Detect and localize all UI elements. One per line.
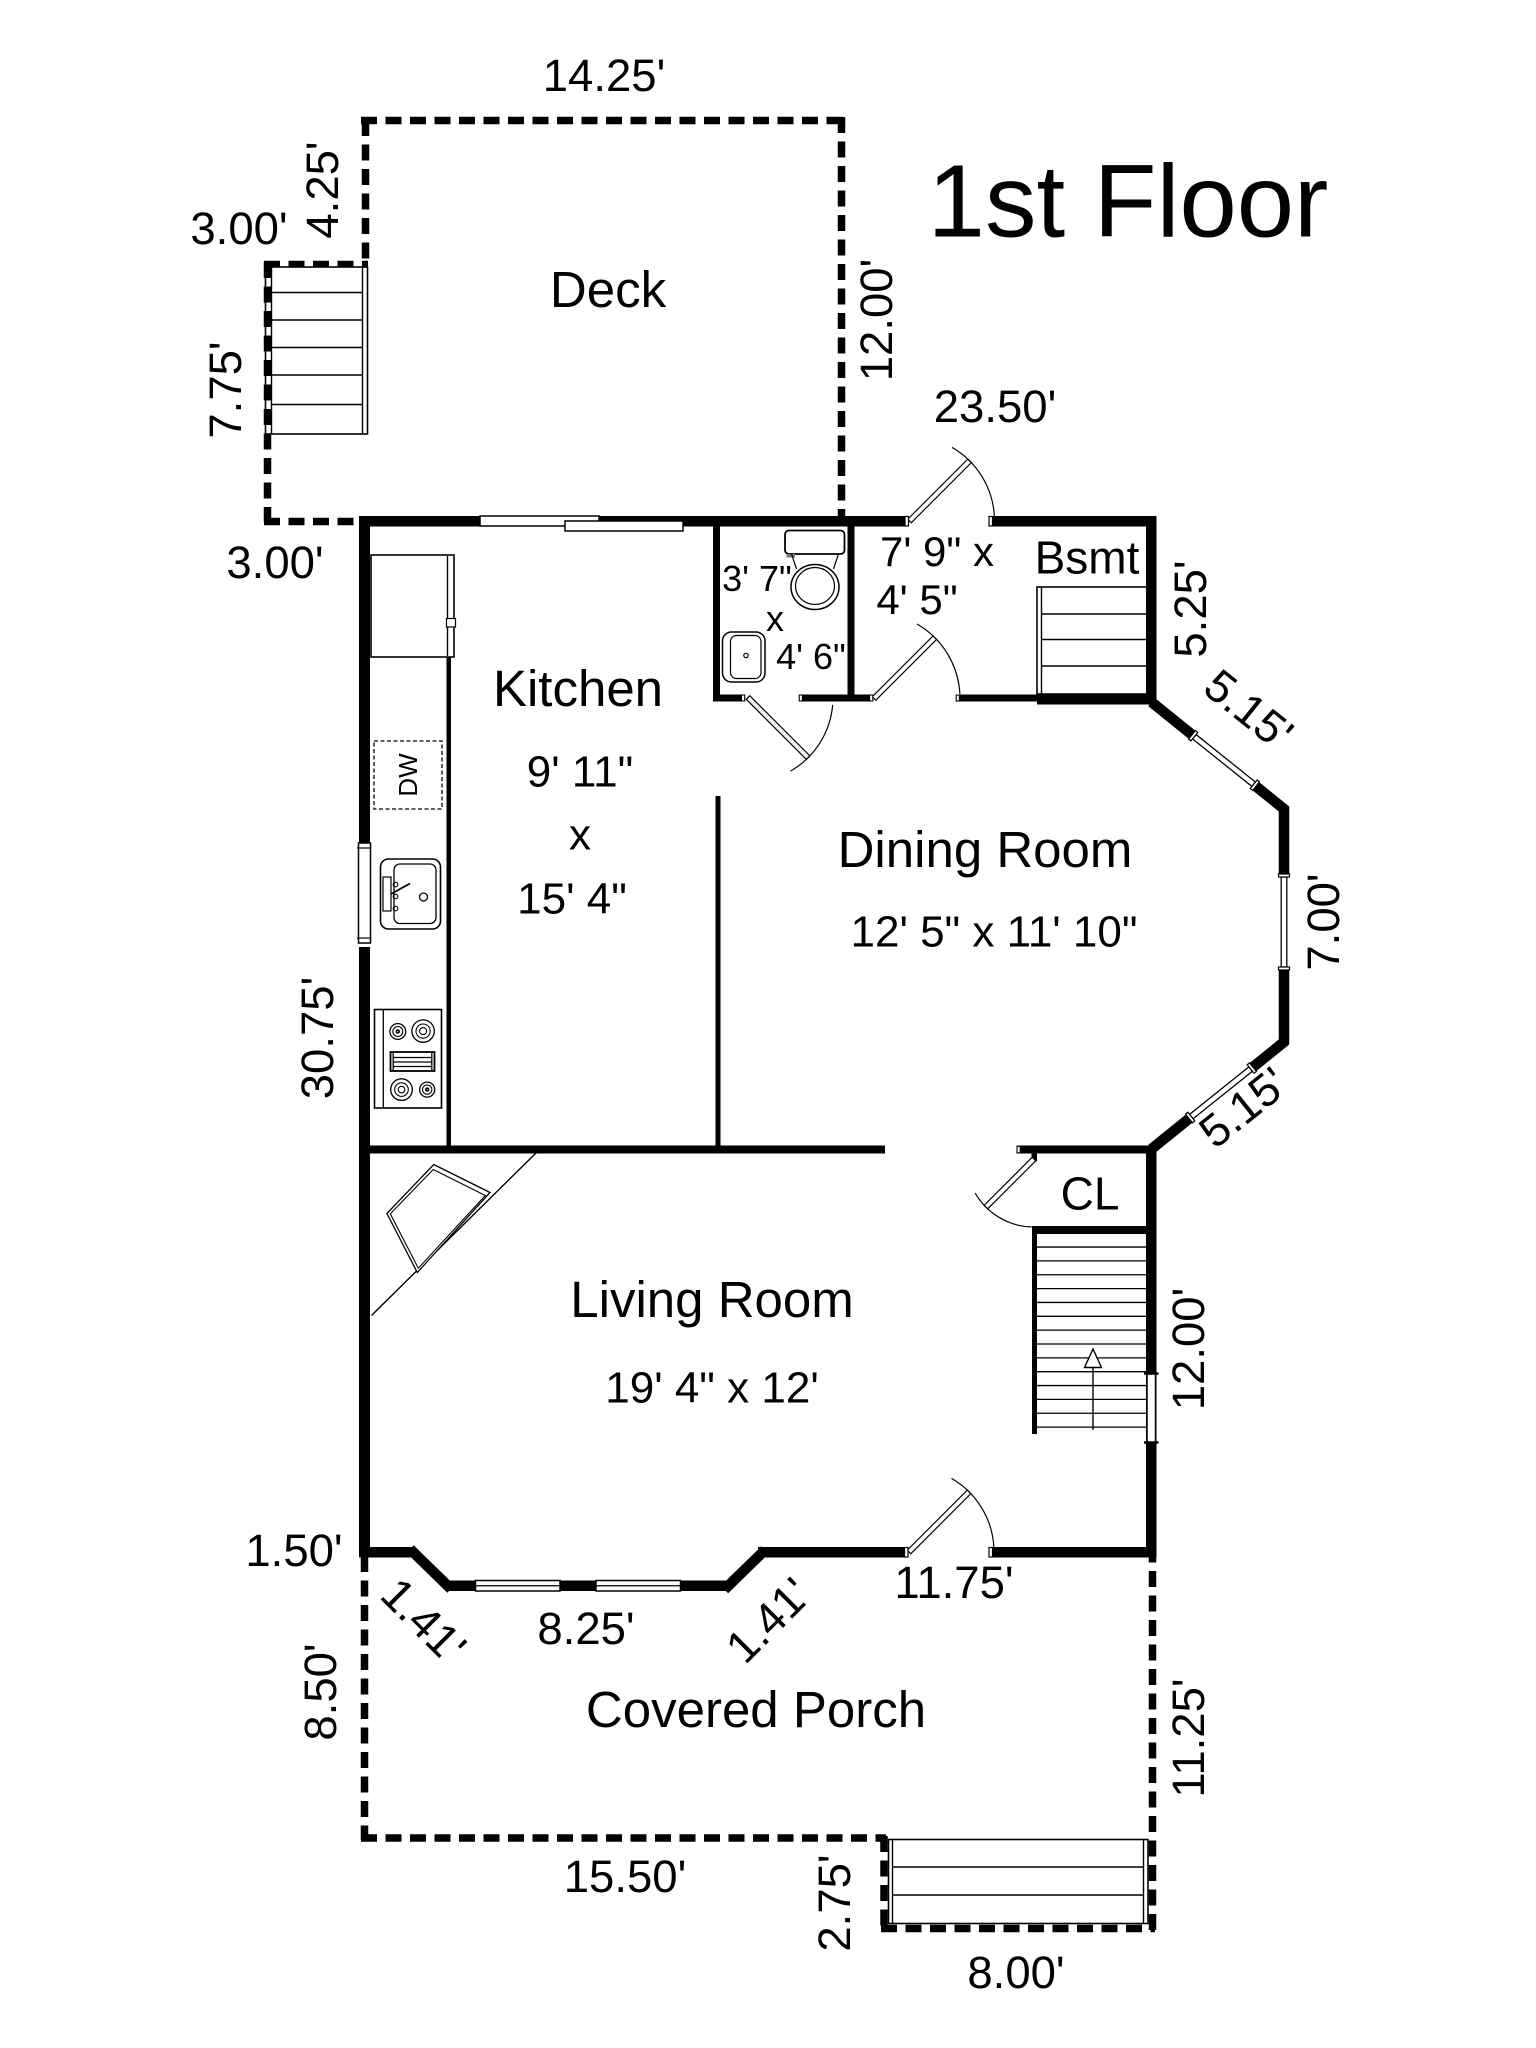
- svg-text:DW: DW: [393, 753, 423, 797]
- svg-text:Kitchen: Kitchen: [493, 660, 663, 717]
- svg-text:x: x: [569, 811, 591, 860]
- svg-text:Dining Room: Dining Room: [838, 821, 1133, 878]
- svg-text:3.00': 3.00': [190, 203, 287, 254]
- svg-text:30.75': 30.75': [292, 977, 343, 1100]
- svg-text:15.50': 15.50': [564, 1851, 687, 1902]
- svg-text:7.00': 7.00': [1298, 873, 1349, 970]
- svg-text:8.25': 8.25': [537, 1603, 634, 1654]
- svg-text:Bsmt: Bsmt: [1035, 531, 1140, 583]
- svg-text:3' 7": 3' 7": [722, 558, 792, 599]
- svg-text:11.25': 11.25': [1163, 1678, 1214, 1797]
- svg-text:15' 4": 15' 4": [517, 875, 627, 924]
- svg-text:2.75': 2.75': [809, 1854, 860, 1951]
- svg-text:12' 5" x 11' 10": 12' 5" x 11' 10": [851, 908, 1138, 957]
- svg-text:9' 11": 9' 11": [527, 748, 633, 797]
- svg-text:1st Floor: 1st Floor: [928, 144, 1329, 259]
- svg-text:7' 9" x: 7' 9" x: [880, 528, 994, 575]
- svg-text:5.25': 5.25': [1165, 560, 1216, 657]
- svg-text:1.50': 1.50': [245, 1525, 342, 1576]
- svg-text:23.50': 23.50': [934, 381, 1057, 432]
- svg-text:4.25': 4.25': [297, 141, 348, 238]
- svg-text:Covered Porch: Covered Porch: [586, 1681, 926, 1738]
- svg-text:19' 4" x 12': 19' 4" x 12': [605, 1364, 818, 1413]
- svg-text:7.75': 7.75': [200, 341, 251, 438]
- svg-text:Deck: Deck: [550, 261, 667, 318]
- svg-text:12.00': 12.00': [851, 259, 902, 382]
- svg-text:12.00': 12.00': [1163, 1288, 1214, 1411]
- svg-text:8.50': 8.50': [295, 1643, 346, 1740]
- svg-text:8.00': 8.00': [967, 1947, 1064, 1998]
- svg-text:x: x: [766, 598, 784, 639]
- svg-text:3.00': 3.00': [226, 537, 323, 588]
- svg-text:CL: CL: [1061, 1167, 1120, 1219]
- svg-text:4' 6": 4' 6": [776, 636, 846, 677]
- svg-text:Living Room: Living Room: [570, 1271, 853, 1328]
- svg-text:11.75': 11.75': [894, 1557, 1013, 1608]
- svg-text:14.25': 14.25': [543, 50, 666, 101]
- svg-text:4' 5": 4' 5": [876, 576, 957, 623]
